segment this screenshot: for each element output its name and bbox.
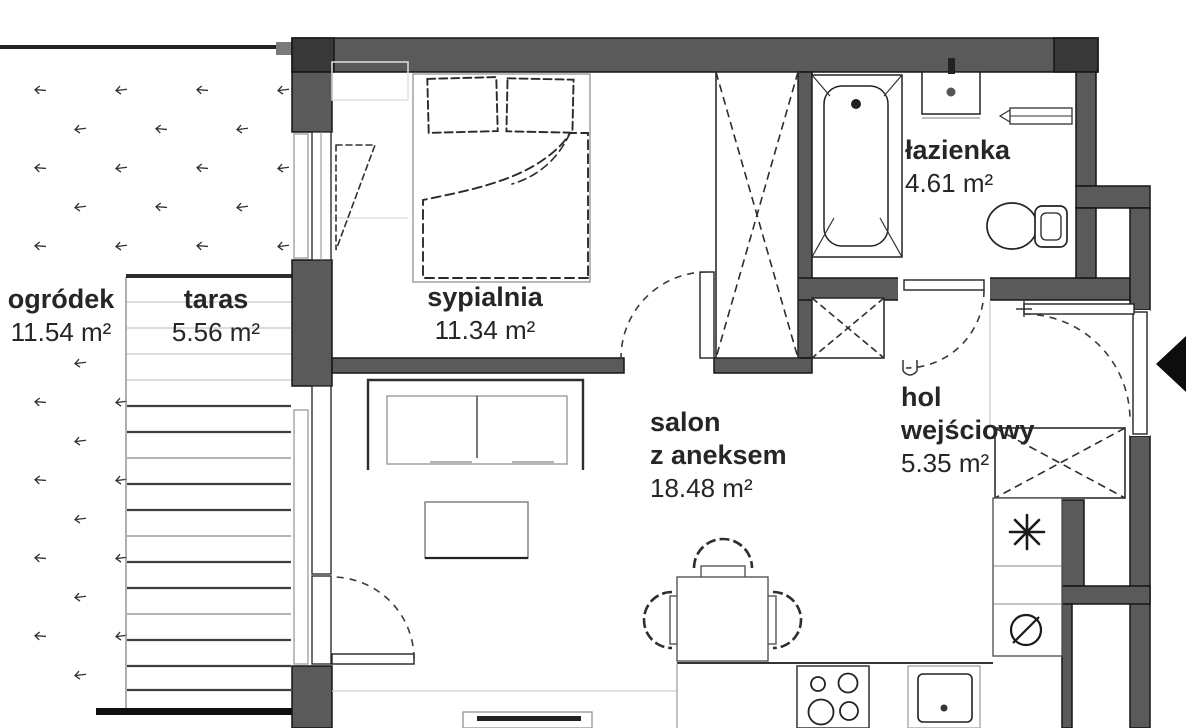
bed-blanket (423, 133, 588, 278)
shaft-box (812, 298, 884, 358)
dining-chair-left-back (644, 592, 672, 648)
toilet (987, 203, 1067, 249)
tv-cabinet (463, 712, 592, 728)
room-area: 11.34 m² (385, 314, 585, 347)
entrance-arrow-icon (1156, 336, 1186, 392)
room-area: 5.56 m² (152, 316, 280, 349)
room-label-salon: salon z aneksem 18.48 m² (650, 406, 840, 505)
coffee-table (425, 502, 528, 558)
wall-step-band (1076, 186, 1150, 208)
bedroom-window (294, 132, 331, 260)
wall-top (292, 38, 1098, 72)
dining-chair-right-back (773, 592, 801, 648)
room-label-sypialnia: sypialnia 11.34 m² (385, 281, 585, 347)
wall-bathroom-right-lower (1076, 208, 1096, 278)
window-opening-indicator (336, 145, 375, 250)
room-area: 11.54 m² (0, 316, 122, 349)
bed-pillow-right (506, 78, 573, 132)
room-name-line2: z aneksem (650, 439, 840, 472)
room-name: ogródek (0, 283, 122, 316)
tv (477, 716, 581, 721)
radiator (1000, 108, 1072, 124)
room-label-hol: hol wejściowy 5.35 m² (901, 381, 1071, 480)
room-label-lazienka: łazienka 4.61 m² (905, 134, 1075, 200)
appliance-column (993, 498, 1062, 656)
faucet-icon (948, 58, 955, 74)
bathroom-door (898, 276, 990, 375)
bedroom-door (621, 272, 714, 358)
room-name-line1: hol (901, 381, 1071, 414)
wall-top-corner-right (1054, 38, 1098, 72)
balcony-window-door (294, 386, 331, 664)
wall-right-lower (1130, 436, 1150, 728)
wall-se-vertical-1 (1062, 500, 1084, 586)
sofa (368, 380, 583, 470)
tall-wardrobe (716, 72, 798, 358)
room-name-line1: salon (650, 406, 840, 439)
wall-top-corner-left (292, 38, 334, 72)
wall-left-a (292, 72, 332, 132)
floor-plan-drawing (0, 0, 1186, 728)
wall-bathroom-south-right (986, 278, 1132, 300)
garden-grass-pattern (35, 85, 290, 679)
room-area: 4.61 m² (905, 167, 1075, 200)
snowflake-icon (1010, 515, 1044, 549)
wall-bathroom-right (1076, 72, 1096, 186)
furniture-bedroom (332, 62, 590, 282)
wall-bedroom-south (332, 358, 624, 373)
dining-set (644, 539, 801, 661)
dining-chair-top-back (694, 539, 752, 568)
room-label-taras: taras 5.56 m² (152, 283, 280, 349)
bed-pillow-left (427, 77, 497, 133)
bathtub (812, 75, 902, 257)
dining-table (677, 577, 768, 661)
garden-boundary (0, 42, 292, 55)
kitchen-sink (908, 666, 980, 728)
wall-bathroom-south-left (798, 278, 902, 300)
windows (294, 132, 331, 664)
room-name: taras (152, 283, 280, 316)
room-label-ogrodek: ogródek 11.54 m² (0, 283, 122, 349)
room-name: sypialnia (385, 281, 585, 314)
wall-bedroom-south-stub (714, 358, 812, 373)
wall-left-c (292, 666, 332, 728)
balcony-door-swing (332, 577, 414, 664)
wall-se-horizontal (1062, 586, 1150, 604)
room-name-line2: wejściowy (901, 414, 1071, 447)
room-area: 18.48 m² (650, 472, 840, 505)
room-name: łazienka (905, 134, 1075, 167)
stove (797, 666, 869, 728)
wall-se-vertical-2 (1062, 604, 1072, 728)
floor-plan: ogródek 11.54 m² taras 5.56 m² sypialnia… (0, 0, 1186, 728)
wall-bathroom-left (798, 72, 812, 358)
wall-left-b (292, 260, 332, 386)
room-area: 5.35 m² (901, 447, 1071, 480)
wall-right-upper (1130, 208, 1150, 310)
